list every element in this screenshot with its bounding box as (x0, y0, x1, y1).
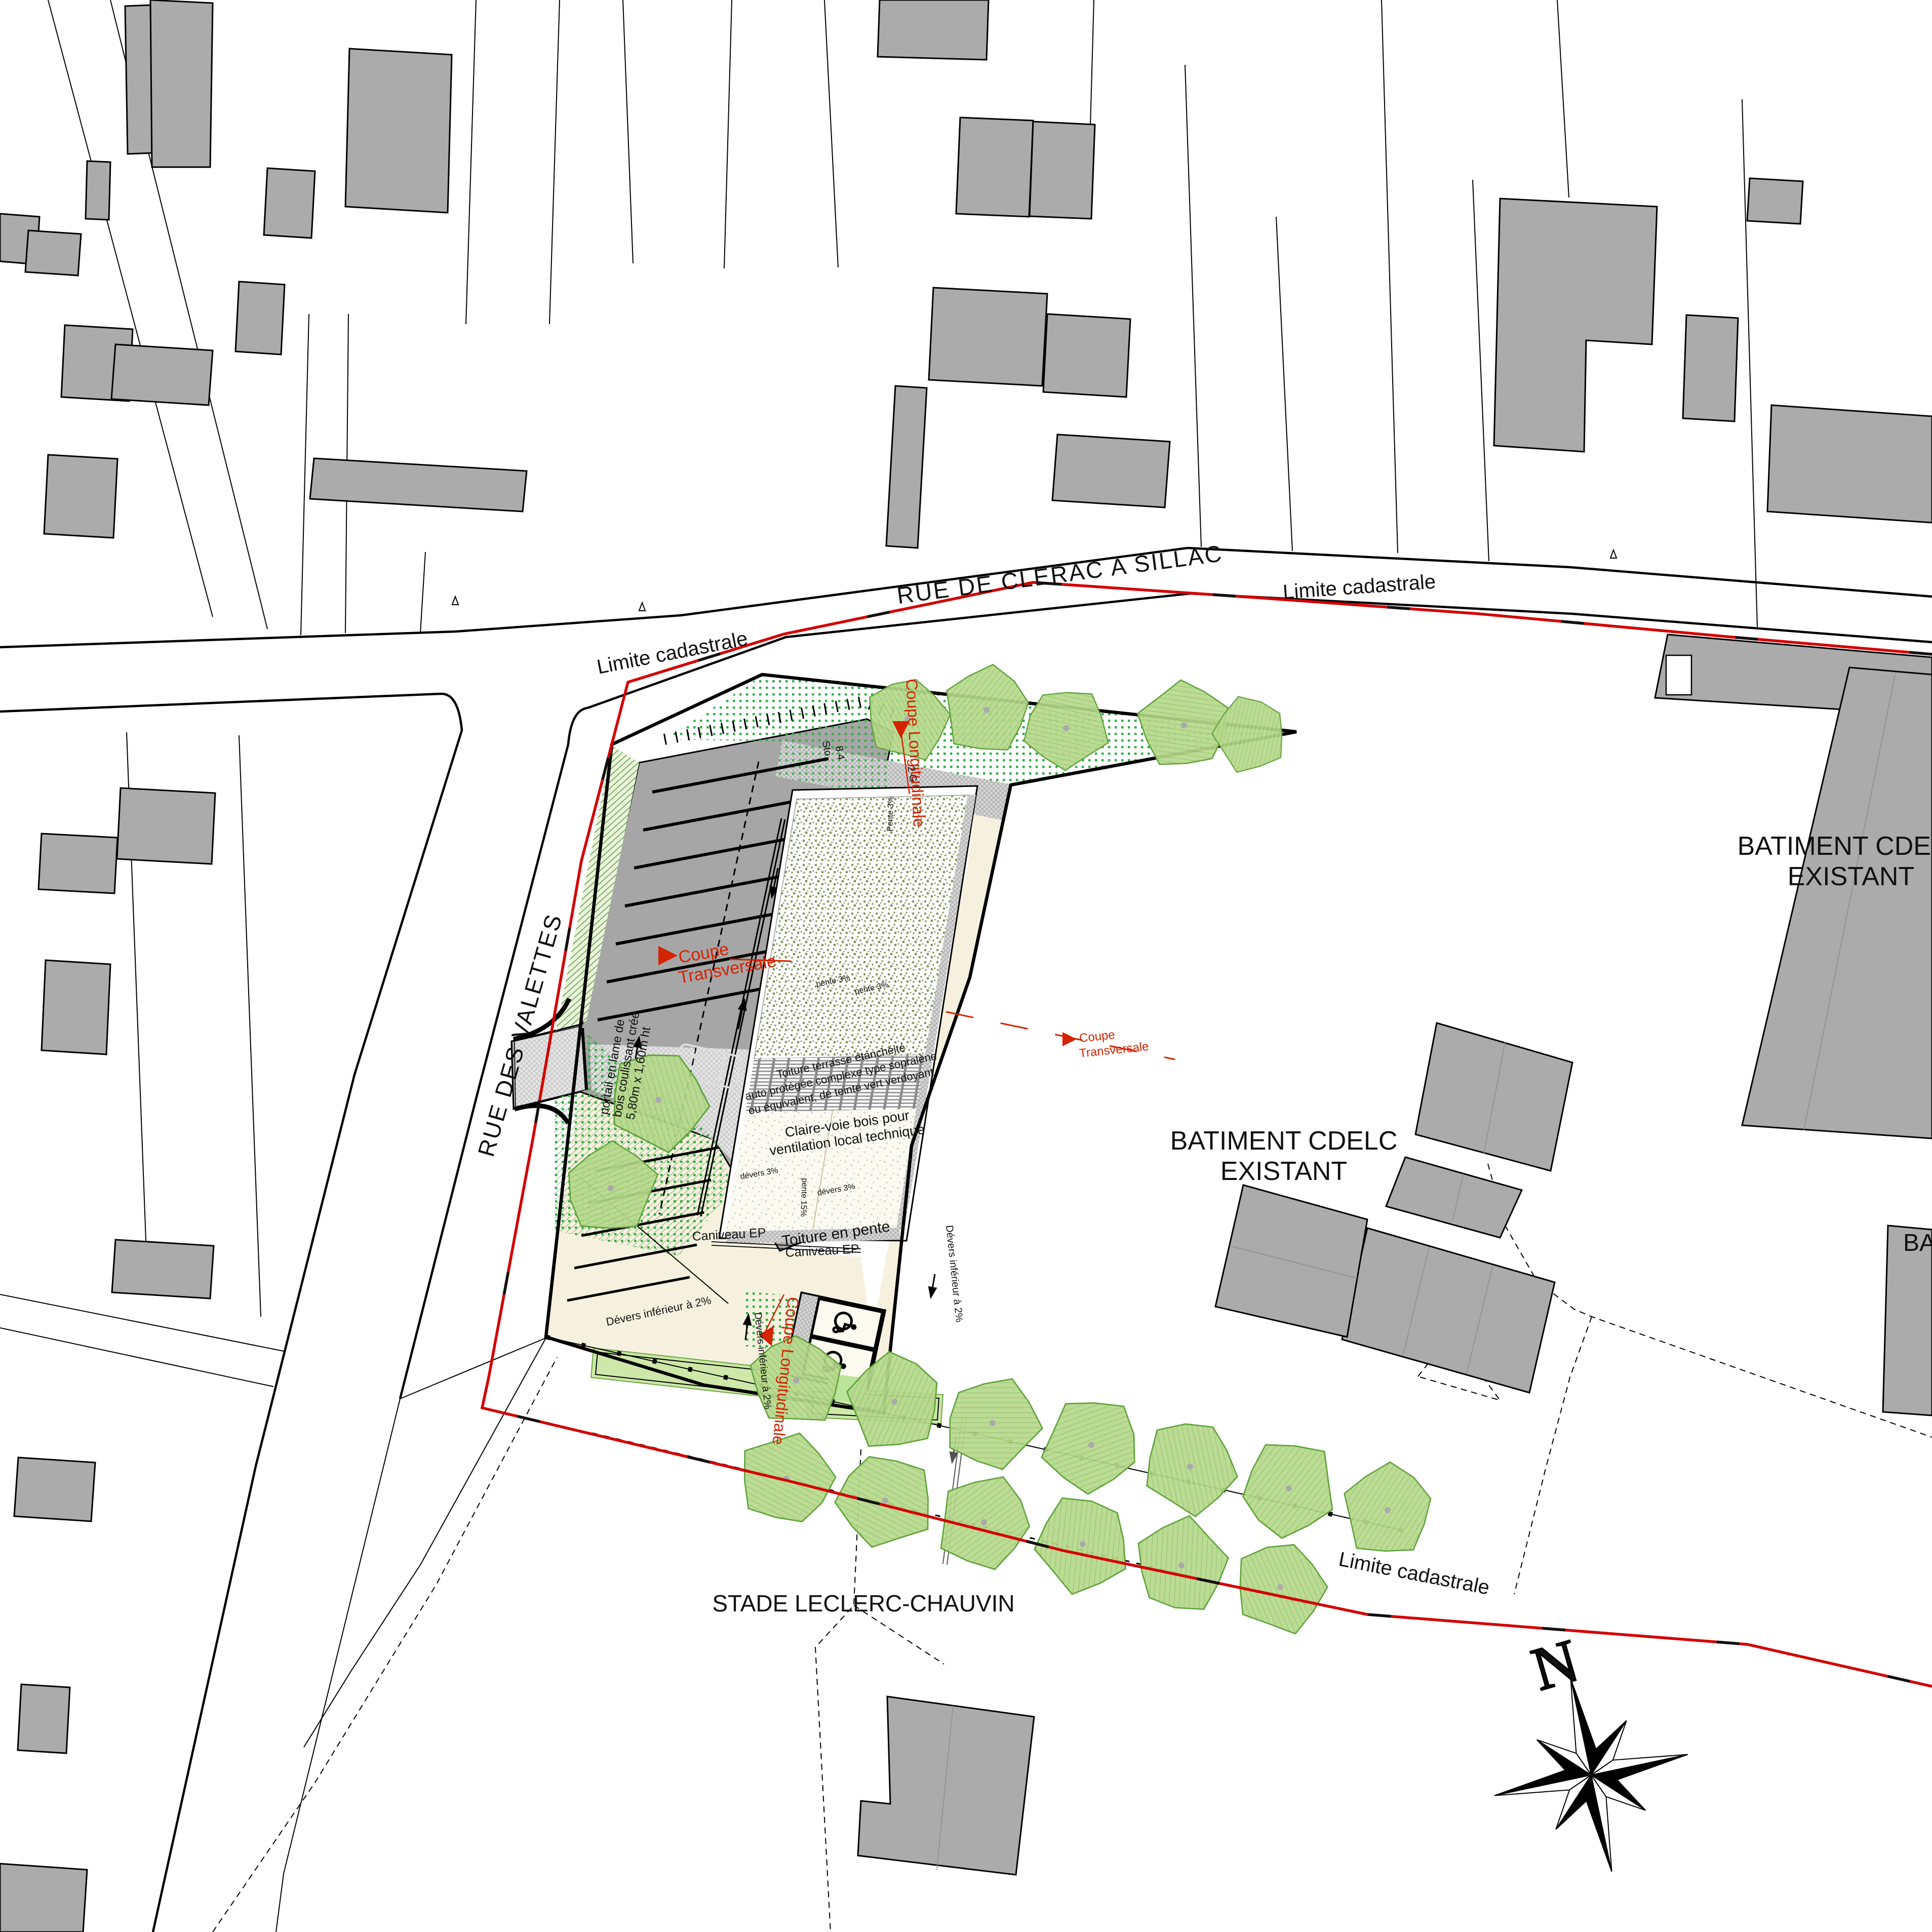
batiment-center-line1: BATIMENT CDELC (1170, 1126, 1398, 1156)
batiment-right-line2: EXISTANT (1788, 862, 1914, 891)
pente15-label: pente 15% (799, 1178, 809, 1217)
batiment-right-line1: BATIMENT CDELC (1738, 832, 1932, 861)
pente3-roof-label: Pente 3% (886, 796, 895, 832)
site-plan-canvas: N RUE DE CLERAC A SILLAC RUE DES VALETTE… (0, 0, 1932, 1932)
stade-label: STADE LECLERC-CHAUVIN (712, 1590, 1014, 1616)
batiment-center-line2: EXISTANT (1220, 1157, 1347, 1186)
batiment-edge-partial: BA (1903, 1230, 1932, 1256)
